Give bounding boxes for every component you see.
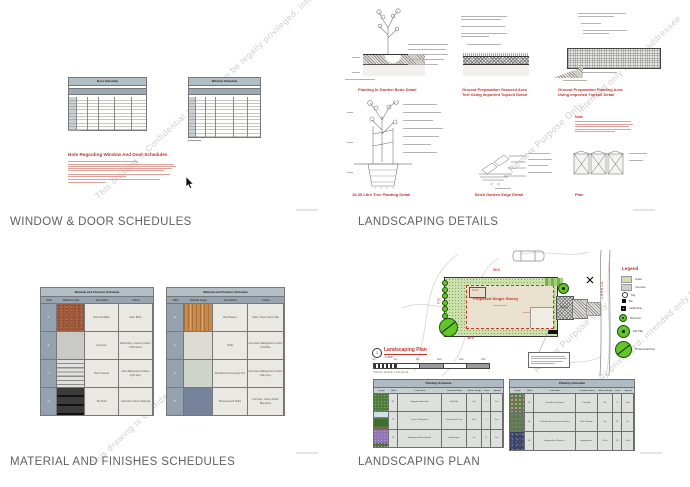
legend-label: Bin bbox=[629, 300, 633, 303]
brick-edge-sketch bbox=[478, 146, 528, 186]
lilly-pilly-tree bbox=[558, 283, 569, 294]
planting-area-section bbox=[567, 48, 661, 69]
swatch-face-brick bbox=[57, 304, 85, 331]
col-colour: Colour bbox=[248, 299, 284, 302]
window-schedule-title: Window Schedule bbox=[189, 78, 260, 86]
sheet-edge-mark bbox=[640, 452, 662, 454]
col-image: Material Image bbox=[184, 299, 213, 302]
planting-schedule-title: Planting Schedule bbox=[374, 380, 503, 388]
planting-row: T1 Pyrus Calleryana Ornamental Pear 8m 1… bbox=[374, 412, 503, 430]
car-sketch bbox=[512, 249, 546, 263]
legend-bin-symbol bbox=[622, 299, 626, 303]
sheet-edge-mark bbox=[296, 209, 318, 211]
ornamental-pear-tree bbox=[439, 318, 458, 337]
col-mark: Mark bbox=[167, 299, 184, 302]
scale-bar bbox=[373, 363, 490, 369]
col-description: Description bbox=[213, 299, 248, 302]
legend-label: Clothesline bbox=[629, 307, 642, 310]
mouse-cursor-icon bbox=[185, 176, 195, 190]
street-lines bbox=[595, 250, 617, 376]
planting-row: S1 Syzygium Australe Lilly Pilly 4m 7 2m bbox=[374, 394, 503, 412]
material-table-colhead: Mark Material Image Description Colour bbox=[41, 297, 153, 304]
door-schedule-header bbox=[69, 88, 146, 95]
detail1-caption: Planting In Garden Beds Detail bbox=[358, 87, 416, 92]
building-annex bbox=[530, 307, 553, 328]
material-table-title: Material and Finishes Schedule bbox=[41, 288, 153, 297]
sheet3-caption: MATERIAL AND FINISHES SCHEDULES bbox=[10, 456, 235, 468]
detail3-caption: Ground Preparation Planting AreaUsing Im… bbox=[558, 87, 623, 97]
sheet1-caption: WINDOW & DOOR SCHEDULES bbox=[10, 216, 192, 228]
door-schedule-rows bbox=[69, 97, 146, 130]
planting-row: S4 Trachelospermum Jasminoides Star Jasm… bbox=[510, 413, 634, 432]
porch-label: Porch bbox=[472, 289, 478, 292]
material-row: C Roof / Fascia Steel Background Colour … bbox=[41, 360, 153, 388]
x-marker bbox=[586, 276, 594, 284]
detail5-caption: Brick Garden Edge Detail bbox=[475, 192, 523, 197]
plant-photo bbox=[374, 394, 388, 411]
plant-photo bbox=[510, 413, 524, 431]
legend-label: Concrete bbox=[635, 286, 646, 289]
col-image: Material Image bbox=[57, 299, 85, 302]
sheet4-caption: LANDSCAPING PLAN bbox=[358, 456, 480, 468]
planting-schedule-left: Planting Schedule Image Mark Latin Name … bbox=[373, 379, 504, 448]
note-regarding-schedules: Note Regarding Window And Door Schedules bbox=[68, 152, 178, 185]
details-note-block: Note bbox=[575, 115, 633, 135]
swatch-concrete bbox=[57, 332, 85, 359]
garden-bed-tree-sketch bbox=[362, 8, 414, 54]
planting-schedule-title: Planting Schedule bbox=[510, 380, 634, 388]
door-schedule-table: Door Schedule bbox=[68, 77, 147, 131]
door-schedule-title: Door Schedule bbox=[69, 78, 146, 86]
grassed-area-section bbox=[463, 53, 529, 75]
swatch-dark-roof-tile bbox=[57, 388, 85, 415]
sheet2-caption: LANDSCAPING DETAILS bbox=[358, 216, 498, 228]
col-description: Description bbox=[85, 299, 119, 302]
note-text-lines bbox=[68, 161, 178, 185]
note-leader-line bbox=[535, 330, 551, 352]
plan-reference-bubble: 1 bbox=[372, 348, 382, 358]
note-title: Note Regarding Window And Door Schedules bbox=[68, 152, 178, 158]
dimension-top: 30.0 bbox=[493, 268, 500, 272]
legend-lilly-pilly-symbol bbox=[617, 325, 630, 338]
legend-label: Grass bbox=[635, 278, 642, 281]
legend-label: Lilly Pilly bbox=[633, 330, 643, 333]
window-schedule-table: Window Schedule bbox=[188, 77, 261, 138]
door-schedule-footer bbox=[68, 130, 81, 131]
material-row: F Trellis Aluminium Background Colour Of… bbox=[167, 332, 284, 360]
plan-panels-sketch bbox=[573, 150, 625, 178]
legend-tap-symbol bbox=[622, 292, 628, 298]
col-colour: Colour bbox=[119, 299, 153, 302]
sheet-edge-mark bbox=[633, 209, 655, 211]
material-table-title: Material and Finishes Schedule bbox=[167, 288, 284, 297]
swatch-steel-cladding bbox=[57, 360, 85, 387]
legend-clothesline-symbol bbox=[621, 306, 626, 311]
window-schedule-footer bbox=[188, 140, 201, 141]
plan-scale: 1:200 bbox=[385, 355, 393, 359]
sheet-window-door-schedules[interactable]: Door Schedule Window Schedule bbox=[0, 0, 345, 244]
planting-row: S5 Agapanthus Praecox Agapanthus 0.6m 20… bbox=[510, 432, 634, 450]
window-schedule-header bbox=[189, 88, 260, 95]
sheet-material-finishes[interactable]: Material and Finishes Schedule Mark Mate… bbox=[0, 244, 345, 487]
sheet-landscaping-plan[interactable]: Proposed Single Storey Porch Garage bbox=[345, 244, 690, 487]
material-row: G Windows And Framing Trim Aluminium Bac… bbox=[167, 360, 284, 388]
material-row: D Tile Roof Concrete Colour Charcoal bbox=[41, 388, 153, 415]
legend-title: Legend bbox=[622, 266, 638, 271]
street-label: STREET bbox=[600, 282, 604, 300]
legend-ornamental-pear-symbol bbox=[615, 341, 632, 358]
detail2-caption: Ground Preparation Grassed AreaTurf Usin… bbox=[462, 87, 527, 97]
material-row: E Roof Beams Stain, Clear Colour Oak bbox=[167, 304, 284, 332]
plant-photo bbox=[510, 394, 524, 412]
planting-row: S3 Camellia Sasanqua Camellia 3m 5 1.5m bbox=[510, 394, 634, 413]
detail4-caption: 15-35 Litre Tree Planting Detail bbox=[352, 192, 410, 197]
material-row: B Concrete Boral Clay / Cement Colour CS… bbox=[41, 332, 153, 360]
swatch-pale-grey bbox=[184, 360, 213, 387]
detail6-caption: Plan bbox=[575, 192, 583, 197]
legend-viburnum-symbol bbox=[619, 314, 627, 322]
details-note-title: Note bbox=[575, 115, 633, 119]
swatch-bluestone bbox=[184, 388, 213, 415]
swatch-timber bbox=[184, 304, 213, 331]
material-table-right: Material and Finishes Schedule Mark Mate… bbox=[166, 287, 285, 416]
legend-grass-swatch bbox=[621, 276, 632, 283]
material-table-colhead: Mark Material Image Description Colour bbox=[167, 297, 284, 304]
sheet-edge-mark bbox=[296, 452, 318, 454]
legend-label: Tap bbox=[631, 294, 635, 297]
material-row: H Driveway And Paths Concrete, Colour Fi… bbox=[167, 388, 284, 415]
window-schedule-rows bbox=[189, 97, 260, 137]
planting-row: S2 Hydrangea Macrophylla Hydrangea 1m 6 … bbox=[374, 430, 503, 447]
legend-label: Viburnum bbox=[630, 317, 641, 320]
visual-scale-note: VISUAL SCALE 1:200 @ A3 bbox=[373, 370, 408, 374]
legend-concrete-swatch bbox=[621, 284, 632, 291]
plan-note-box bbox=[528, 352, 570, 368]
dimension-left: 37.0 bbox=[436, 298, 440, 304]
planting-schedule-right: Planting Schedule Image Mark Latin Name … bbox=[509, 379, 635, 451]
tree-planting-sketch bbox=[352, 100, 414, 190]
garage-label: Garage bbox=[560, 306, 568, 309]
plan-title: Landscaping Plan bbox=[384, 347, 427, 355]
porch: Porch bbox=[469, 287, 486, 298]
sheet-landscaping-details[interactable]: Planting In Garden Beds Detail Ground Pr… bbox=[345, 0, 690, 244]
plant-photo bbox=[374, 430, 388, 447]
material-table-left: Material and Finishes Schedule Mark Mate… bbox=[40, 287, 154, 416]
col-mark: Mark bbox=[41, 299, 57, 302]
plant-photo bbox=[374, 412, 388, 429]
legend-label: Ornamental Pear bbox=[635, 348, 655, 351]
dimension-bottom: 30.0 bbox=[467, 336, 474, 340]
material-row: A External Walls Face Brick bbox=[41, 304, 153, 332]
plant-photo bbox=[510, 432, 524, 450]
swatch-off-white bbox=[184, 332, 213, 359]
drawing-set-page: This drawing is Confidential and may als… bbox=[0, 0, 690, 487]
